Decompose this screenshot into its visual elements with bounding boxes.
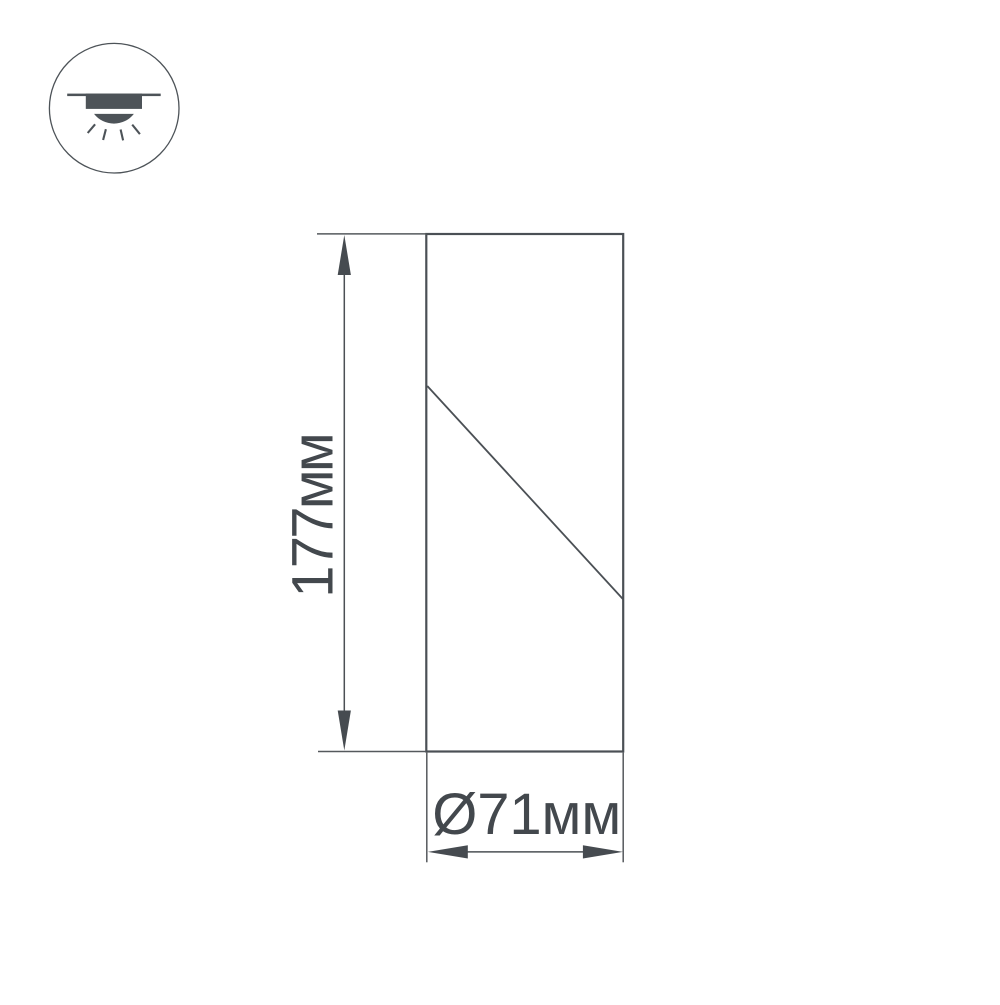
svg-text:177мм: 177мм xyxy=(281,432,346,598)
svg-text:Ø71мм: Ø71мм xyxy=(432,782,621,847)
